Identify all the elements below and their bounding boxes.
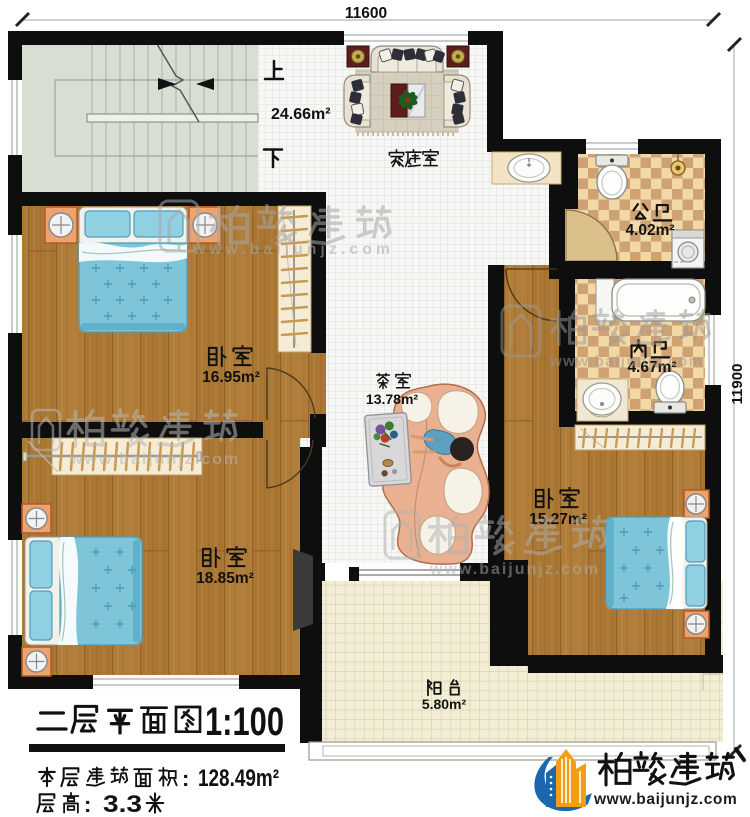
svg-text::: : <box>84 792 91 817</box>
svg-text:www.baijunjz.com: www.baijunjz.com <box>69 451 240 468</box>
svg-text:www.baijunjz.com: www.baijunjz.com <box>549 353 703 370</box>
svg-text:16.95m²: 16.95m² <box>202 369 260 386</box>
svg-text:www.baijunjz.com: www.baijunjz.com <box>429 561 600 578</box>
svg-text:13.78m²: 13.78m² <box>366 391 418 407</box>
svg-text:11900: 11900 <box>729 364 746 405</box>
svg-text:1:100: 1:100 <box>205 700 284 744</box>
svg-text:www.baijunjz.com: www.baijunjz.com <box>593 791 737 808</box>
svg-text:5.80m²: 5.80m² <box>422 696 467 712</box>
svg-text:4.02m²: 4.02m² <box>625 222 674 239</box>
svg-text:24.66m²: 24.66m² <box>271 106 331 123</box>
svg-text::: : <box>182 766 189 791</box>
svg-text:11600: 11600 <box>345 5 387 22</box>
svg-text:3.3: 3.3 <box>103 791 142 817</box>
svg-text:128.49m²: 128.49m² <box>198 765 279 792</box>
svg-text:www.baijunjz.com: www.baijunjz.com <box>192 241 394 258</box>
svg-text:18.85m²: 18.85m² <box>196 570 254 587</box>
